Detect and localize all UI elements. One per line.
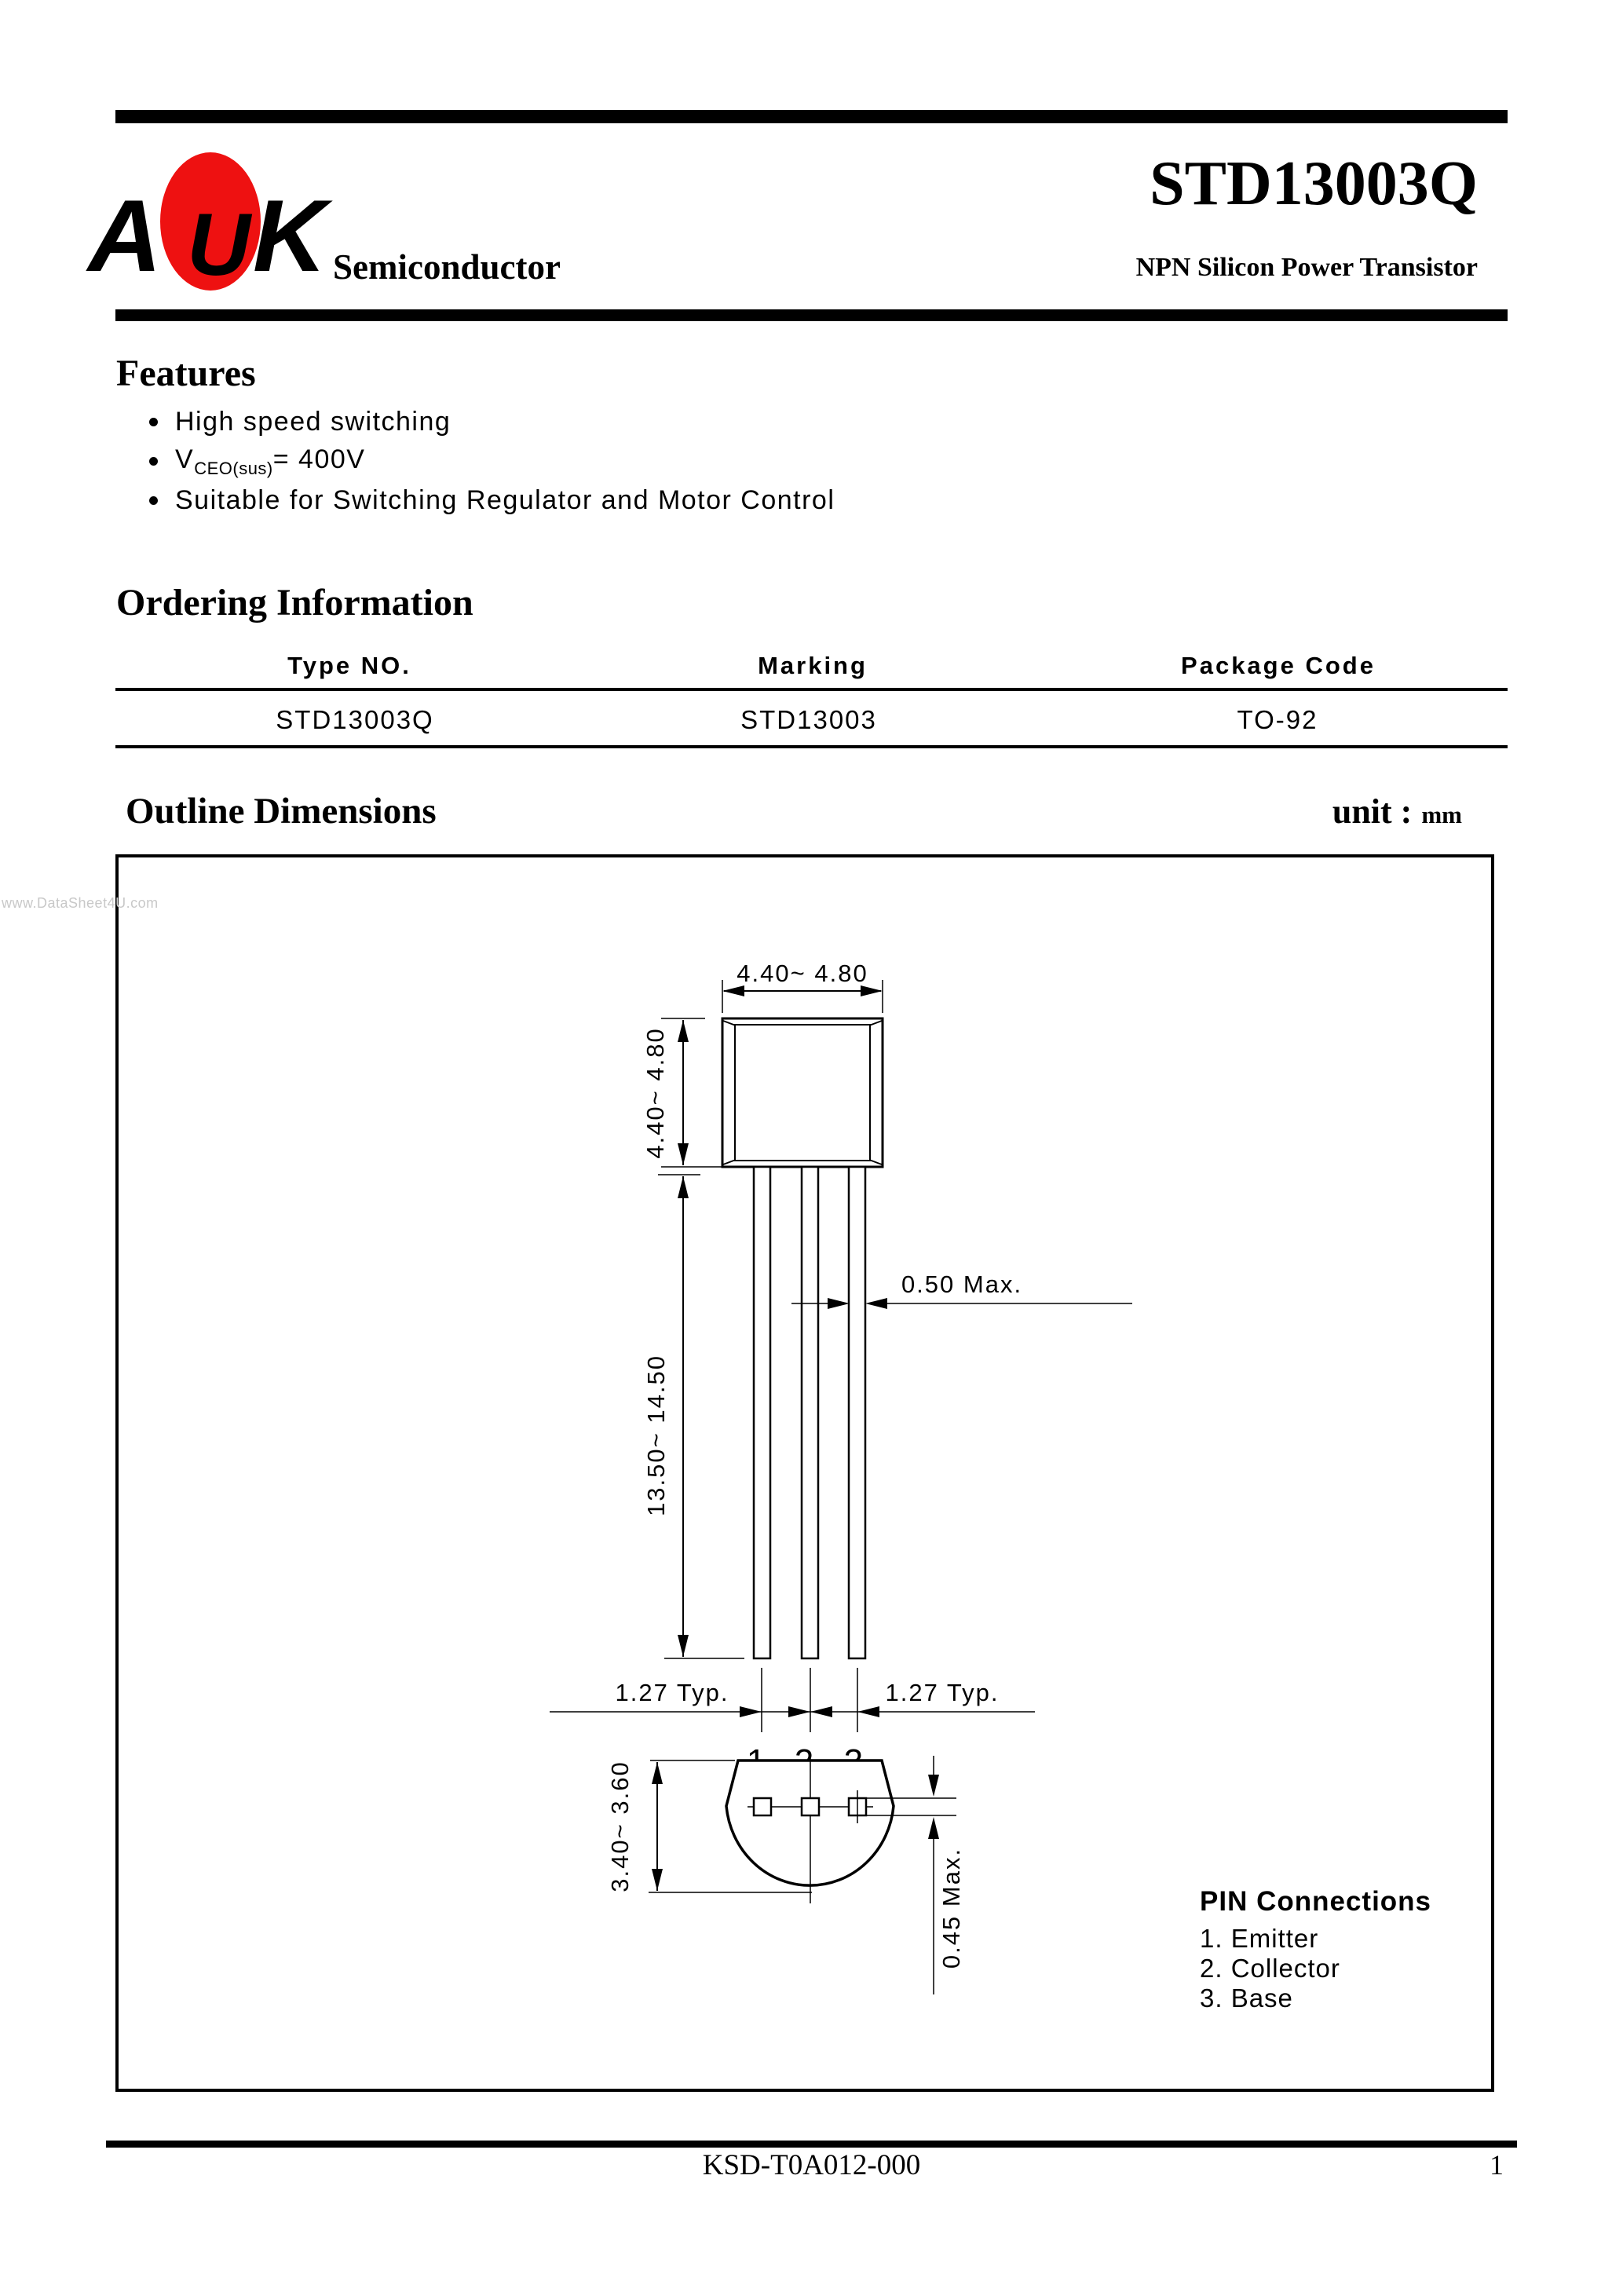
dim-pitch-left: 1.27 Typ. bbox=[616, 1679, 729, 1706]
feature-text: High speed switching bbox=[175, 407, 451, 437]
pin-connection-base: 3. Base bbox=[1200, 1983, 1431, 2013]
dim-front-width: 4.40~ 4.80 bbox=[737, 960, 868, 987]
feature-item: Suitable for Switching Regulator and Mot… bbox=[149, 485, 835, 516]
table-header-marking: Marking bbox=[758, 652, 868, 680]
pin-connections-title: PIN Connections bbox=[1200, 1886, 1431, 1918]
bullet-icon bbox=[149, 457, 158, 466]
package-body-front bbox=[722, 1018, 883, 1167]
dim-standoff: 0.45 Max. bbox=[938, 1848, 965, 1969]
footer-page-number: 1 bbox=[1490, 2148, 1504, 2181]
dim-lead-width: 0.50 Max. bbox=[901, 1270, 1022, 1298]
pin-connections: PIN Connections 1. Emitter 2. Collector … bbox=[1200, 1886, 1431, 2013]
outline-heading: Outline Dimensions bbox=[126, 790, 437, 832]
feature-text: Suitable for Switching Regulator and Mot… bbox=[175, 485, 835, 516]
bullet-icon bbox=[149, 496, 158, 505]
lead-1 bbox=[754, 1167, 770, 1658]
table-header-type: Type NO. bbox=[287, 652, 411, 680]
dim-pitch-right: 1.27 Typ. bbox=[886, 1679, 1000, 1706]
vceo-symbol: V bbox=[175, 444, 194, 474]
table-rule-bottom bbox=[115, 745, 1508, 748]
table-rule-top bbox=[115, 688, 1508, 691]
dim-lead-length: 13.50~ 14.50 bbox=[642, 1355, 670, 1516]
pin-cross-section-2 bbox=[802, 1798, 819, 1815]
table-cell-marking: STD13003 bbox=[740, 705, 877, 735]
feature-item: VCEO(sus)= 400V bbox=[149, 444, 365, 479]
logo-letter-k: K bbox=[253, 185, 327, 287]
feature-text: VCEO(sus)= 400V bbox=[175, 444, 365, 479]
dim-front-height: 4.40~ 4.80 bbox=[642, 1027, 669, 1158]
table-cell-package: TO-92 bbox=[1237, 705, 1318, 735]
datasheet-page: A U K Semiconductor STD13003Q NPN Silico… bbox=[0, 0, 1623, 2296]
lead-2 bbox=[802, 1167, 818, 1658]
dim-bottom-height: 3.40~ 3.60 bbox=[606, 1760, 634, 1892]
lead-3 bbox=[849, 1167, 865, 1658]
vceo-subscript: CEO(sus) bbox=[194, 459, 273, 478]
logo-letter-u: U bbox=[187, 201, 250, 289]
pin-cross-section-1 bbox=[754, 1798, 771, 1815]
ordering-heading: Ordering Information bbox=[116, 581, 473, 624]
vceo-value: = 400V bbox=[273, 444, 366, 474]
table-header-package: Package Code bbox=[1181, 652, 1376, 680]
logo-letter-a: A bbox=[88, 185, 162, 287]
logo-company-name: Semiconductor bbox=[333, 247, 561, 287]
header-rule-top bbox=[115, 110, 1508, 123]
header-rule-bottom bbox=[115, 309, 1508, 321]
footer-rule bbox=[106, 2141, 1517, 2148]
unit-value: mm bbox=[1421, 801, 1462, 829]
footer-document-number: KSD-T0A012-000 bbox=[703, 2148, 920, 2182]
feature-item: High speed switching bbox=[149, 407, 451, 437]
unit-label: unit : bbox=[1332, 792, 1412, 832]
pin-connection-collector: 2. Collector bbox=[1200, 1954, 1431, 1983]
unit-note: unit : mm bbox=[1332, 792, 1462, 832]
table-cell-type: STD13003Q bbox=[276, 705, 433, 735]
part-number-title: STD13003Q bbox=[1150, 151, 1478, 217]
bullet-icon bbox=[149, 418, 158, 426]
part-description-subtitle: NPN Silicon Power Transistor bbox=[1136, 253, 1478, 283]
pin-connection-emitter: 1. Emitter bbox=[1200, 1924, 1431, 1954]
features-heading: Features bbox=[116, 352, 256, 395]
